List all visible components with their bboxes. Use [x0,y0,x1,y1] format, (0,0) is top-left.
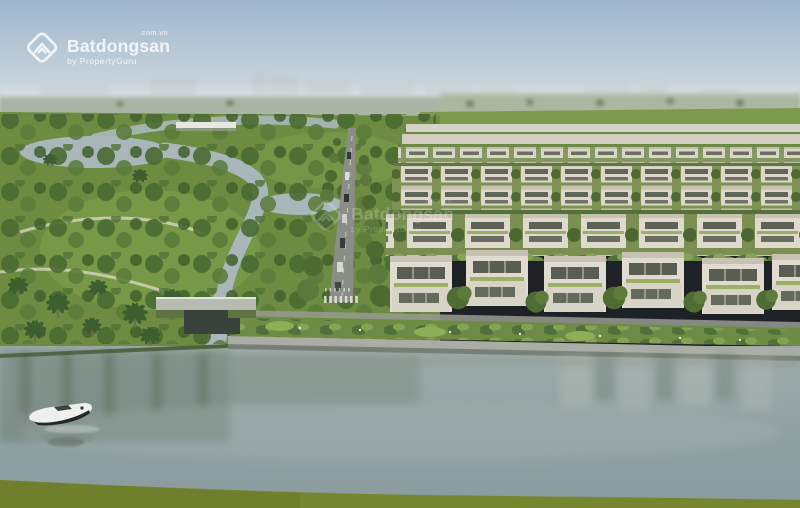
park-footbridge [176,122,236,131]
scene-canvas [0,0,800,508]
villa-front-row [390,250,800,314]
villa-grid [384,124,800,261]
aerial-render-image: .com.vn Batdongsan by PropertyGuru .com.… [0,0,800,508]
water-reflections [0,350,800,462]
